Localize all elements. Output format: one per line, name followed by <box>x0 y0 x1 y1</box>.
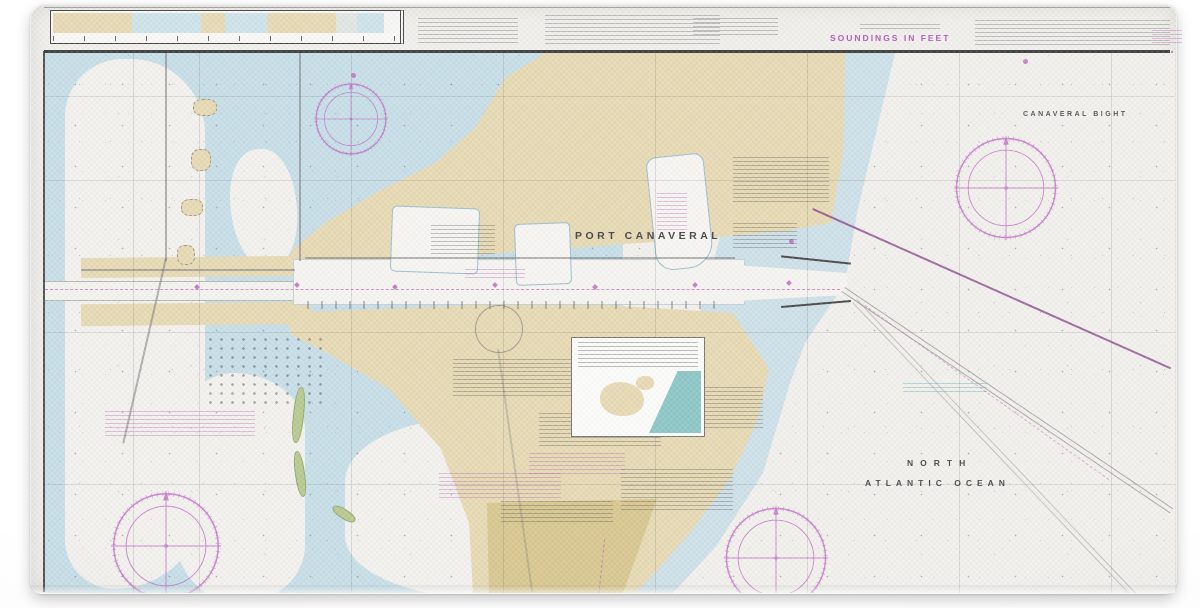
note-block-magenta <box>439 473 561 499</box>
note-block <box>733 157 829 203</box>
north-south-road <box>299 53 301 261</box>
margin-note-block <box>860 24 940 32</box>
note-block-magenta <box>465 269 525 281</box>
note-block <box>431 225 495 257</box>
chart-top-margin: SOUNDINGS IN FEET <box>30 4 1177 51</box>
tank-farm-blocks <box>205 335 325 405</box>
lagoon-island <box>177 245 195 265</box>
inset-water-segment <box>357 13 385 33</box>
note-block <box>501 501 613 523</box>
lagoon-island <box>181 199 203 216</box>
label-north: NORTH <box>907 458 972 468</box>
note-block-magenta <box>657 193 687 233</box>
cloverleaf-interchange <box>475 305 523 353</box>
inset-land-segment <box>267 13 336 33</box>
inset-land-segment <box>201 13 225 33</box>
note-block-magenta <box>529 453 625 475</box>
inset-chart-band <box>53 13 398 33</box>
product-photo: SOUNDINGS IN FEET <box>0 0 1200 608</box>
inset-table-lines <box>578 342 698 368</box>
note-block-teal <box>903 383 987 395</box>
inset-ocean <box>649 371 701 433</box>
compass-rose-icon <box>952 134 1060 242</box>
soundings-note: SOUNDINGS IN FEET <box>830 33 950 43</box>
chart-body: PORT CANAVERAL CANAVERAL BIGHT NORTH ATL… <box>45 53 1175 593</box>
inset-water-segment <box>132 13 201 33</box>
inset-margin-segment <box>384 13 398 33</box>
margin-hairline <box>44 7 1170 8</box>
continuation-inset-chart <box>50 10 404 44</box>
tide-inset-panel <box>571 337 705 437</box>
margin-note-block-magenta <box>1152 30 1182 46</box>
label-port-canaveral: PORT CANAVERAL <box>575 230 721 242</box>
magenta-marker <box>351 73 356 78</box>
lagoon-island <box>193 99 217 116</box>
inset-land <box>636 376 654 390</box>
note-block <box>733 223 797 249</box>
margin-note-block <box>693 18 778 38</box>
inset-land-segment <box>53 13 132 33</box>
note-block <box>621 469 733 511</box>
label-canaveral-bight: CANAVERAL BIGHT <box>1023 111 1128 118</box>
label-atlantic-ocean: ATLANTIC OCEAN <box>865 478 1010 488</box>
causeway-road <box>81 269 295 271</box>
compass-rose-icon <box>313 81 389 157</box>
beach-towel: SOUNDINGS IN FEET <box>30 4 1177 594</box>
inset-shore-segment <box>336 13 357 33</box>
note-block <box>453 359 585 399</box>
inset-scale-ticks <box>53 36 398 41</box>
margin-note-block <box>975 20 1170 46</box>
compass-rose-icon <box>722 504 830 593</box>
compass-rose-icon <box>109 489 223 593</box>
margin-note-block <box>418 18 518 46</box>
inset-water-segment <box>225 13 266 33</box>
magenta-marker <box>1023 59 1028 64</box>
barrier-island-road <box>165 53 167 261</box>
note-block-magenta <box>105 411 255 437</box>
lagoon-island <box>191 149 211 171</box>
